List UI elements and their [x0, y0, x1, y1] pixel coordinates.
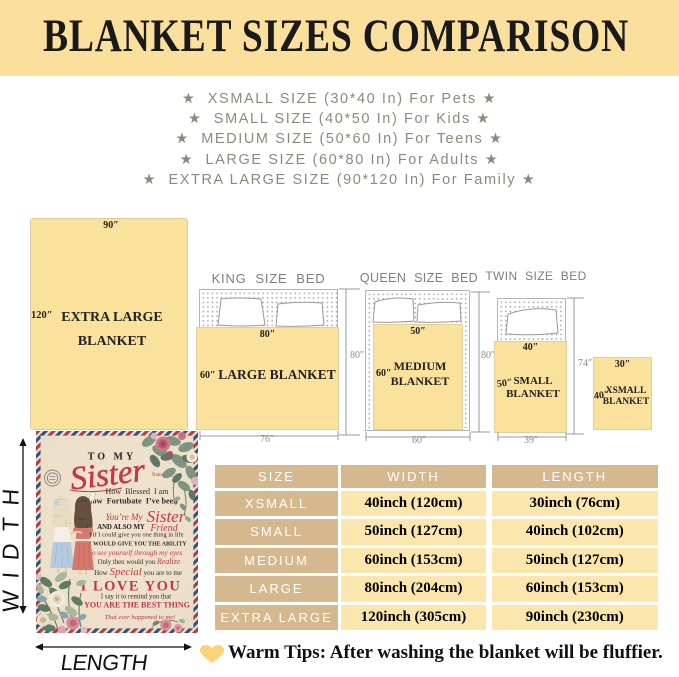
svg-text:AND ALSO MY: AND ALSO MY — [97, 524, 145, 531]
svg-text:Only then would you Realize: Only then would you Realize — [98, 557, 181, 566]
svg-text:I say it to remind you that: I say it to remind you that — [101, 594, 171, 601]
svg-text:I WOULD GIVE YOU THE ABILITY: I WOULD GIVE YOU THE ABILITY — [89, 542, 187, 548]
svg-text:How Fortubate I’ve been: How Fortubate I’ve been — [86, 497, 178, 506]
svg-text:How Blessed I am: How Blessed I am — [106, 487, 170, 496]
svg-text:You’re My: You’re My — [105, 512, 142, 522]
svg-text:I LOVE YOU: I LOVE YOU — [81, 579, 182, 595]
svg-text:YOU ARE THE BEST THING: YOU ARE THE BEST THING — [84, 601, 190, 610]
svg-text:If I could give you one thing: If I could give you one thing in life — [92, 532, 183, 539]
svg-text:to see yourself through my eye: to see yourself through my eyes — [90, 548, 183, 557]
